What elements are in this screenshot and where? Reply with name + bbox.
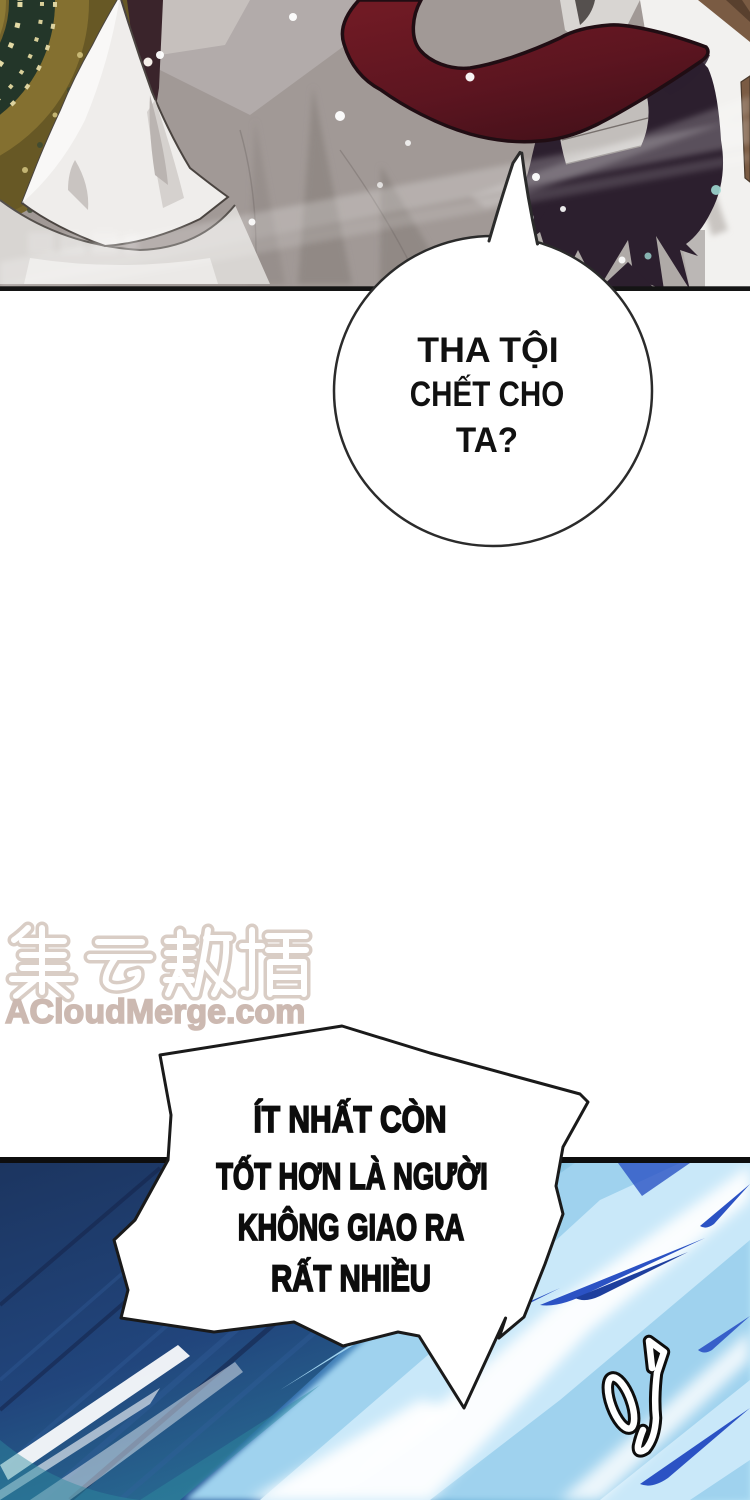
svg-text:TA?: TA? — [456, 421, 518, 460]
svg-text:RẤT NHIỀU: RẤT NHIỀU — [271, 1258, 431, 1300]
svg-text:THA TỘI: THA TỘI — [417, 330, 558, 370]
svg-text:TỐT HƠN LÀ NGƯỜI: TỐT HƠN LÀ NGƯỜI — [216, 1154, 488, 1197]
svg-text:ACloudMerge.com: ACloudMerge.com — [5, 993, 305, 1031]
svg-text:ÍT NHẤT CÒN: ÍT NHẤT CÒN — [253, 1099, 446, 1141]
svg-text:CHẾT CHO: CHẾT CHO — [410, 374, 564, 414]
svg-text:KHÔNG GIAO RA: KHÔNG GIAO RA — [238, 1205, 465, 1248]
